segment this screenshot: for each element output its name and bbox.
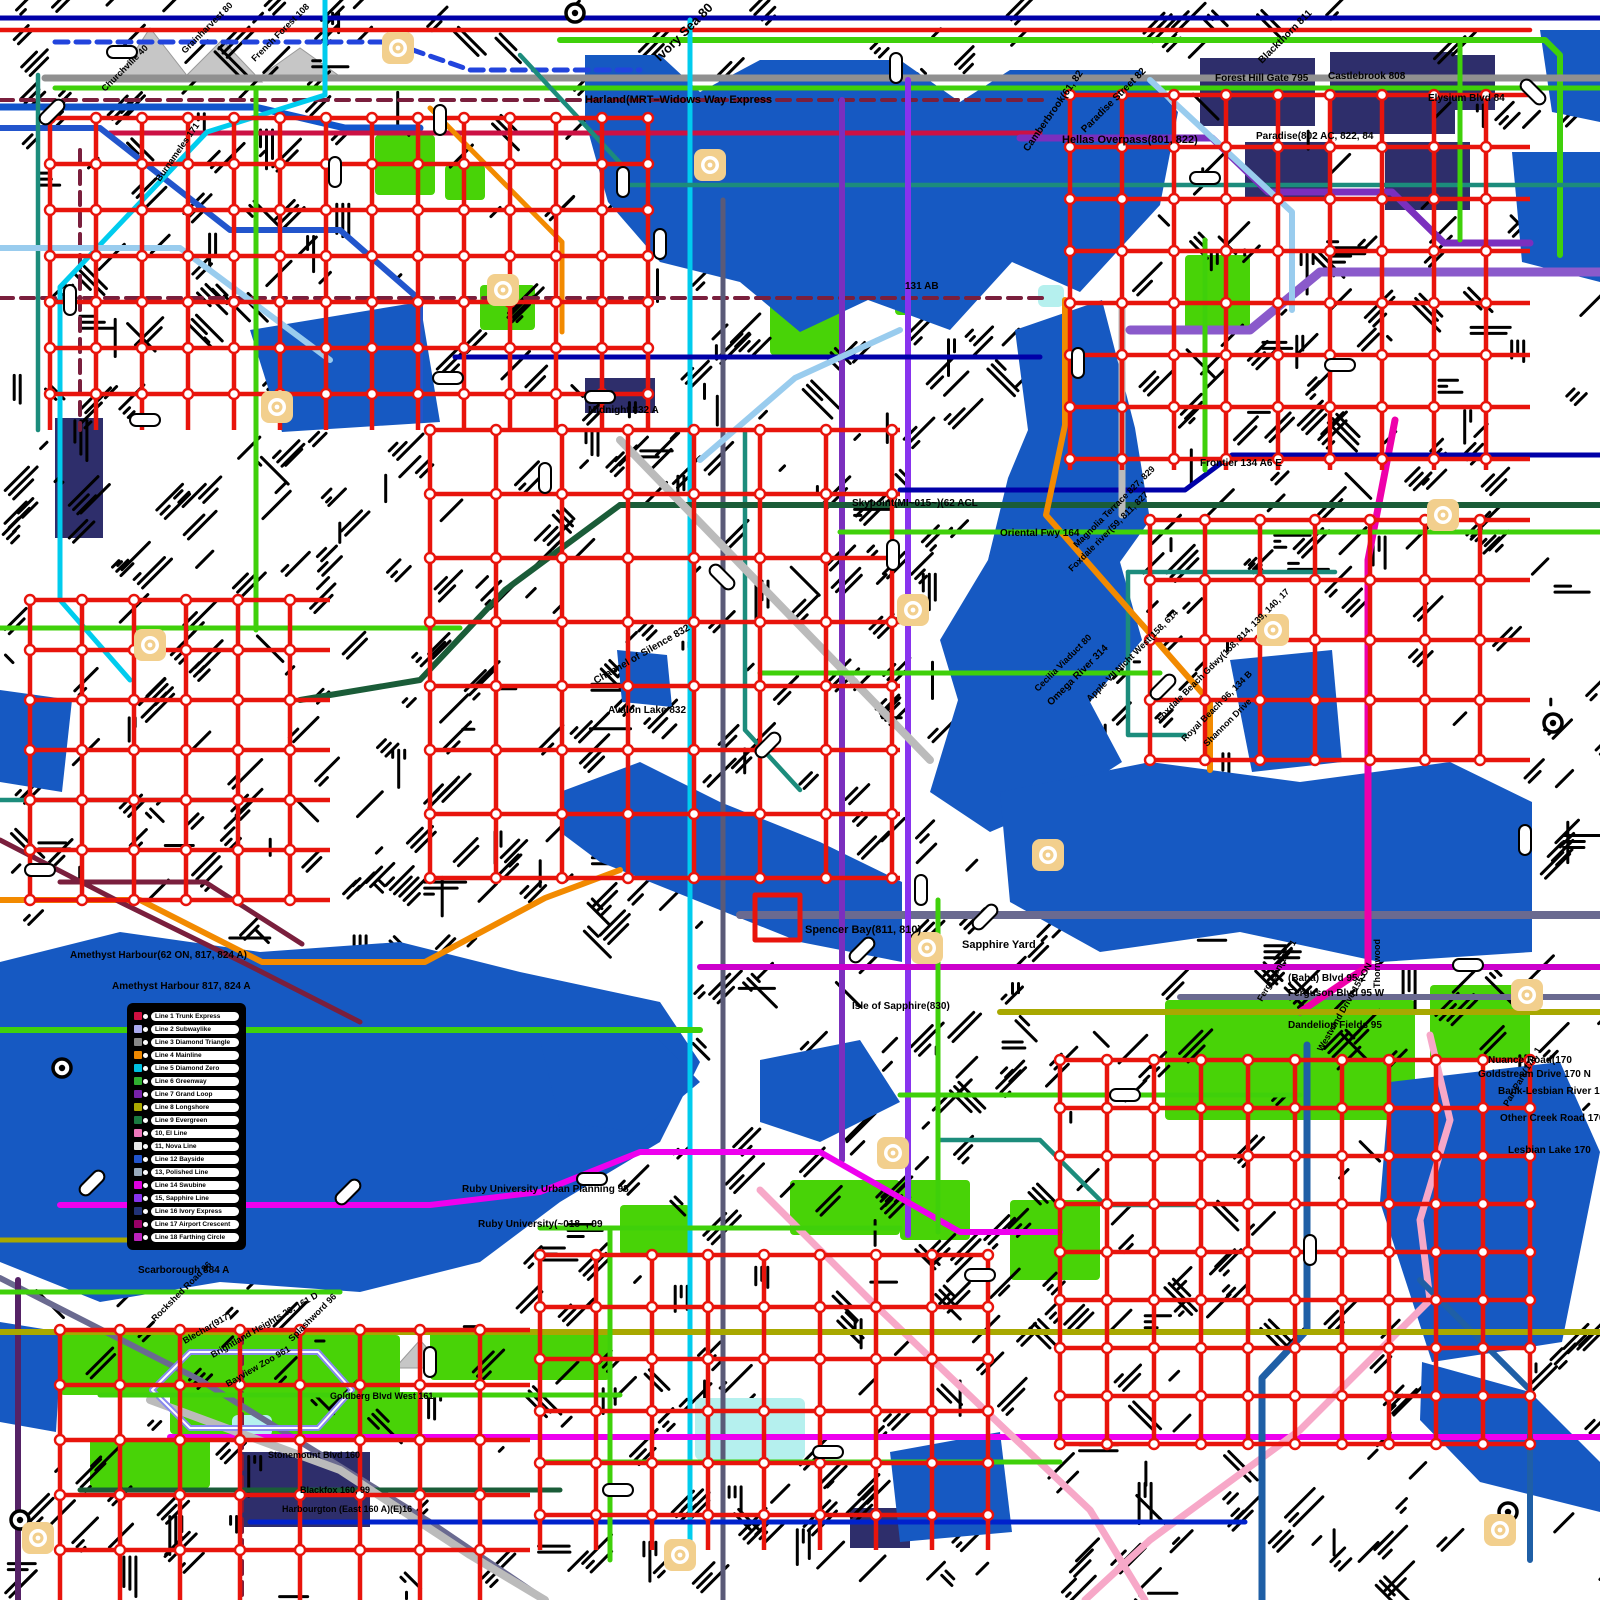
station-circle	[1377, 454, 1387, 464]
station-circle	[1169, 454, 1179, 464]
station-circle	[1431, 1343, 1441, 1353]
station-circle	[77, 895, 87, 905]
station-circle	[927, 1458, 937, 1468]
water-polygon	[0, 1322, 62, 1432]
station-circle	[367, 205, 377, 215]
station-circle	[1429, 350, 1439, 360]
station-circle	[1102, 1295, 1112, 1305]
station-circle	[689, 681, 699, 691]
station-circle	[413, 297, 423, 307]
station-circle	[1337, 1199, 1347, 1209]
terminus-inner	[572, 10, 578, 16]
station-circle	[597, 343, 607, 353]
station-circle	[1429, 298, 1439, 308]
station-circle	[229, 343, 239, 353]
interchange-capsule	[617, 167, 629, 197]
station-circle	[551, 159, 561, 169]
station-circle	[1325, 246, 1335, 256]
station-circle	[1200, 515, 1210, 525]
station-circle	[137, 159, 147, 169]
station-circle	[1290, 1343, 1300, 1353]
station-circle	[1200, 635, 1210, 645]
legend-item: Line 18 Farthing Circle	[134, 1232, 239, 1242]
station-circle	[1243, 1391, 1253, 1401]
station-circle	[55, 1490, 65, 1500]
station-circle	[491, 681, 501, 691]
station-circle	[887, 873, 897, 883]
station-circle	[1196, 1247, 1206, 1257]
station-circle	[1365, 755, 1375, 765]
interchange-capsule	[654, 229, 666, 259]
legend-station-dot	[143, 1183, 148, 1188]
station-circle	[927, 1354, 937, 1364]
station-circle	[591, 1302, 601, 1312]
station-circle	[887, 425, 897, 435]
legend-item: 15, Sapphire Line	[134, 1193, 239, 1203]
station-circle	[1337, 1439, 1347, 1449]
station-circle	[25, 645, 35, 655]
station-circle	[703, 1354, 713, 1364]
station-circle	[1377, 246, 1387, 256]
station-circle	[551, 343, 561, 353]
water-polygon	[1230, 650, 1342, 772]
station-circle	[229, 251, 239, 261]
map-legend: Line 1 Trunk ExpressLine 2 SubwaylikeLin…	[128, 1004, 245, 1249]
yard-target-icon	[22, 1522, 54, 1554]
station-circle	[285, 595, 295, 605]
legend-station-dot	[143, 1131, 148, 1136]
legend-line-label: Line 4 Mainline	[151, 1051, 239, 1060]
station-circle	[1196, 1055, 1206, 1065]
station-circle	[413, 113, 423, 123]
station-circle	[1196, 1343, 1206, 1353]
station-circle	[1243, 1439, 1253, 1449]
station-circle	[1273, 90, 1283, 100]
station-circle	[983, 1458, 993, 1468]
park-area	[90, 1438, 210, 1488]
station-circle	[77, 595, 87, 605]
station-circle	[459, 113, 469, 123]
station-circle	[1149, 1247, 1159, 1257]
station-circle	[1169, 246, 1179, 256]
station-circle	[1429, 246, 1439, 256]
station-circle	[1149, 1343, 1159, 1353]
station-circle	[1377, 142, 1387, 152]
station-circle	[551, 205, 561, 215]
station-circle	[295, 1435, 305, 1445]
station-circle	[235, 1490, 245, 1500]
station-circle	[1525, 1247, 1535, 1257]
legend-item: Line 12 Bayside	[134, 1154, 239, 1164]
station-circle	[551, 297, 561, 307]
interchange-capsule	[1518, 77, 1548, 107]
station-circle	[1169, 402, 1179, 412]
station-circle	[1310, 695, 1320, 705]
station-circle	[557, 553, 567, 563]
station-circle	[535, 1510, 545, 1520]
station-circle	[91, 297, 101, 307]
station-circle	[1196, 1391, 1206, 1401]
station-circle	[45, 297, 55, 307]
station-circle	[321, 389, 331, 399]
legend-item: Line 4 Mainline	[134, 1050, 239, 1060]
interchange-capsule	[813, 1446, 843, 1458]
station-circle	[321, 343, 331, 353]
station-circle	[1243, 1055, 1253, 1065]
interchange-capsule	[25, 864, 55, 876]
station-circle	[1384, 1247, 1394, 1257]
station-label: Avalon Lake 832	[608, 705, 686, 716]
station-circle	[129, 845, 139, 855]
station-circle	[367, 389, 377, 399]
legend-line-label: 11, Nova Line	[151, 1142, 239, 1151]
station-circle	[1377, 194, 1387, 204]
station-circle	[229, 113, 239, 123]
legend-line-swatch	[134, 1168, 142, 1176]
station-circle	[1255, 695, 1265, 705]
station-circle	[1243, 1103, 1253, 1113]
station-circle	[183, 205, 193, 215]
station-circle	[91, 205, 101, 215]
water-polygon	[0, 690, 72, 792]
station-circle	[425, 425, 435, 435]
station-label: Frontier 134 A6 E	[1200, 458, 1282, 469]
station-circle	[459, 205, 469, 215]
interchange-capsule	[887, 540, 899, 570]
legend-item: Line 1 Trunk Express	[134, 1011, 239, 1021]
station-circle	[1196, 1295, 1206, 1305]
station-circle	[1102, 1391, 1112, 1401]
station-circle	[413, 389, 423, 399]
interchange-capsule	[1190, 172, 1220, 184]
legend-item: 11, Nova Line	[134, 1141, 239, 1151]
legend-line-swatch	[134, 1064, 142, 1072]
station-circle	[1420, 635, 1430, 645]
station-circle	[755, 681, 765, 691]
station-circle	[183, 251, 193, 261]
interchange-capsule	[1325, 359, 1355, 371]
station-circle	[1481, 454, 1491, 464]
station-circle	[821, 425, 831, 435]
station-circle	[1255, 515, 1265, 525]
station-circle	[647, 1510, 657, 1520]
station-circle	[591, 1250, 601, 1260]
station-label: Amethyst Harbour(62 ON, 817, 824 A)	[70, 950, 247, 961]
station-circle	[815, 1406, 825, 1416]
station-label: Goldstream Drive 170 N	[1478, 1069, 1591, 1080]
station-label: Harland(MRT–Widows Way Express	[585, 94, 772, 106]
station-circle	[1429, 454, 1439, 464]
station-label: Stonemount Blvd 160	[268, 1450, 360, 1460]
station-label: Castlebrook 808	[1328, 71, 1406, 82]
terminus-inner	[1550, 720, 1556, 726]
legend-line-swatch	[134, 1077, 142, 1085]
interchange-capsule	[539, 463, 551, 493]
station-circle	[285, 895, 295, 905]
station-circle	[755, 489, 765, 499]
yard-target-icon	[664, 1539, 696, 1571]
station-circle	[1117, 194, 1127, 204]
station-circle	[505, 159, 515, 169]
station-circle	[459, 251, 469, 261]
yard-target-icon	[877, 1137, 909, 1169]
station-circle	[1102, 1199, 1112, 1209]
station-circle	[137, 251, 147, 261]
legend-line-label: Line 2 Subwaylike	[151, 1025, 239, 1034]
station-circle	[1478, 1343, 1488, 1353]
station-circle	[597, 205, 607, 215]
station-label: Oriental Fwy 164	[1000, 528, 1080, 539]
legend-line-label: Line 5 Diamond Zero	[151, 1064, 239, 1073]
station-label: 131 AB	[905, 281, 939, 292]
station-circle	[689, 425, 699, 435]
station-circle	[459, 389, 469, 399]
station-circle	[1377, 298, 1387, 308]
station-circle	[623, 617, 633, 627]
station-circle	[551, 389, 561, 399]
station-circle	[1149, 1439, 1159, 1449]
water-polygon	[1000, 762, 1532, 962]
station-circle	[1149, 1199, 1159, 1209]
station-circle	[1055, 1103, 1065, 1113]
station-circle	[1102, 1151, 1112, 1161]
station-circle	[557, 425, 567, 435]
station-circle	[1221, 350, 1231, 360]
station-circle	[275, 297, 285, 307]
station-circle	[235, 1545, 245, 1555]
station-circle	[1221, 402, 1231, 412]
station-circle	[1365, 515, 1375, 525]
station-circle	[275, 159, 285, 169]
station-circle	[1475, 635, 1485, 645]
station-circle	[1431, 1439, 1441, 1449]
legend-item: 13, Polished Line	[134, 1167, 239, 1177]
transit-line	[940, 1140, 1205, 1205]
station-circle	[1290, 1199, 1300, 1209]
station-circle	[77, 745, 87, 755]
station-circle	[1117, 454, 1127, 464]
station-circle	[1384, 1391, 1394, 1401]
station-circle	[491, 425, 501, 435]
legend-station-dot	[143, 1235, 148, 1240]
station-circle	[755, 553, 765, 563]
station-circle	[229, 297, 239, 307]
legend-line-swatch	[134, 1220, 142, 1228]
station-circle	[1065, 194, 1075, 204]
station-circle	[1117, 246, 1127, 256]
legend-station-dot	[143, 1105, 148, 1110]
station-circle	[367, 113, 377, 123]
station-circle	[115, 1435, 125, 1445]
station-circle	[821, 873, 831, 883]
interchange-capsule	[585, 391, 615, 403]
station-circle	[475, 1380, 485, 1390]
legend-line-label: Line 1 Trunk Express	[151, 1012, 239, 1021]
station-circle	[1169, 194, 1179, 204]
interchange-capsule	[915, 875, 927, 905]
station-circle	[871, 1406, 881, 1416]
station-circle	[591, 1510, 601, 1520]
station-circle	[1055, 1247, 1065, 1257]
station-circle	[1525, 1439, 1535, 1449]
station-circle	[871, 1458, 881, 1468]
station-circle	[25, 845, 35, 855]
station-circle	[321, 251, 331, 261]
station-circle	[55, 1380, 65, 1390]
station-circle	[1273, 194, 1283, 204]
station-circle	[1290, 1247, 1300, 1257]
station-circle	[643, 251, 653, 261]
station-circle	[1065, 298, 1075, 308]
station-circle	[45, 251, 55, 261]
station-circle	[459, 343, 469, 353]
station-circle	[425, 553, 435, 563]
station-circle	[643, 297, 653, 307]
station-circle	[233, 695, 243, 705]
station-circle	[285, 645, 295, 655]
station-circle	[1325, 402, 1335, 412]
station-circle	[491, 809, 501, 819]
station-circle	[1525, 1343, 1535, 1353]
interchange-capsule	[603, 1484, 633, 1496]
legend-line-swatch	[134, 1012, 142, 1020]
legend-line-label: 13, Polished Line	[151, 1168, 239, 1177]
legend-station-dot	[143, 1066, 148, 1071]
station-circle	[1420, 755, 1430, 765]
station-circle	[983, 1406, 993, 1416]
transit-map-canvas[interactable]: Ivory Sea 80Harland(MRT–Widows Way Expre…	[0, 0, 1600, 1600]
station-circle	[115, 1490, 125, 1500]
station-label: Scarborough 884 A	[138, 1265, 229, 1276]
station-circle	[689, 617, 699, 627]
station-circle	[55, 1435, 65, 1445]
water-polygon	[930, 300, 1150, 832]
station-label: Lesbian Lake 170	[1508, 1145, 1591, 1156]
yard-target-icon	[694, 149, 726, 181]
interchange-capsule	[1519, 825, 1531, 855]
station-circle	[175, 1380, 185, 1390]
station-circle	[275, 343, 285, 353]
station-circle	[983, 1510, 993, 1520]
station-circle	[1475, 695, 1485, 705]
station-circle	[415, 1545, 425, 1555]
station-circle	[871, 1510, 881, 1520]
water-polygon	[890, 1432, 1012, 1542]
station-circle	[413, 205, 423, 215]
station-circle	[175, 1435, 185, 1445]
station-circle	[137, 113, 147, 123]
station-circle	[1478, 1199, 1488, 1209]
station-circle	[1290, 1103, 1300, 1113]
station-circle	[1149, 1295, 1159, 1305]
station-circle	[413, 159, 423, 169]
legend-line-label: Line 7 Grand Loop	[151, 1090, 239, 1099]
station-label: Isle of Sapphire(830)	[852, 1001, 950, 1012]
station-circle	[1055, 1055, 1065, 1065]
station-circle	[1102, 1247, 1112, 1257]
station-circle	[871, 1354, 881, 1364]
station-circle	[983, 1302, 993, 1312]
station-circle	[491, 745, 501, 755]
station-circle	[1273, 298, 1283, 308]
station-circle	[1055, 1391, 1065, 1401]
station-circle	[623, 425, 633, 435]
station-circle	[1384, 1199, 1394, 1209]
legend-line-swatch	[134, 1116, 142, 1124]
station-circle	[229, 205, 239, 215]
station-circle	[821, 553, 831, 563]
station-circle	[137, 389, 147, 399]
interchange-capsule	[890, 53, 902, 83]
city-block	[1200, 58, 1315, 126]
station-circle	[1377, 90, 1387, 100]
station-circle	[1055, 1199, 1065, 1209]
station-circle	[491, 489, 501, 499]
station-circle	[871, 1302, 881, 1312]
station-circle	[887, 681, 897, 691]
station-circle	[181, 595, 191, 605]
station-circle	[129, 795, 139, 805]
station-circle	[1429, 194, 1439, 204]
station-circle	[1273, 142, 1283, 152]
station-circle	[1290, 1391, 1300, 1401]
station-circle	[647, 1250, 657, 1260]
station-circle	[1055, 1439, 1065, 1449]
station-label: Sapphire Yard	[962, 939, 1036, 951]
station-label: Amethyst Harbour 817, 824 A	[112, 981, 251, 992]
station-circle	[1481, 142, 1491, 152]
station-circle	[233, 895, 243, 905]
station-circle	[285, 695, 295, 705]
station-circle	[475, 1325, 485, 1335]
station-circle	[1431, 1295, 1441, 1305]
station-circle	[557, 873, 567, 883]
station-label: Hellas Overpass(801, 822)	[1062, 134, 1198, 146]
station-circle	[129, 595, 139, 605]
station-circle	[459, 297, 469, 307]
legend-station-dot	[143, 1027, 148, 1032]
station-circle	[45, 205, 55, 215]
station-circle	[355, 1545, 365, 1555]
station-circle	[321, 113, 331, 123]
station-circle	[643, 159, 653, 169]
legend-item: Line 2 Subwaylike	[134, 1024, 239, 1034]
station-circle	[643, 205, 653, 215]
station-circle	[1169, 90, 1179, 100]
yard-target-icon	[1427, 499, 1459, 531]
legend-line-swatch	[134, 1103, 142, 1111]
station-circle	[1525, 1103, 1535, 1113]
station-circle	[689, 809, 699, 819]
station-circle	[1478, 1055, 1488, 1065]
station-circle	[1169, 350, 1179, 360]
station-circle	[505, 205, 515, 215]
station-circle	[475, 1435, 485, 1445]
station-circle	[183, 343, 193, 353]
station-circle	[175, 1545, 185, 1555]
interchange-capsule	[1453, 959, 1483, 971]
station-circle	[1290, 1439, 1300, 1449]
legend-station-dot	[143, 1144, 148, 1149]
station-circle	[1243, 1151, 1253, 1161]
interchange-capsule	[424, 1347, 436, 1377]
station-circle	[623, 489, 633, 499]
legend-item: Line 3 Diamond Triangle	[134, 1037, 239, 1047]
station-circle	[1377, 350, 1387, 360]
station-circle	[77, 795, 87, 805]
station-circle	[647, 1354, 657, 1364]
station-circle	[1055, 1151, 1065, 1161]
